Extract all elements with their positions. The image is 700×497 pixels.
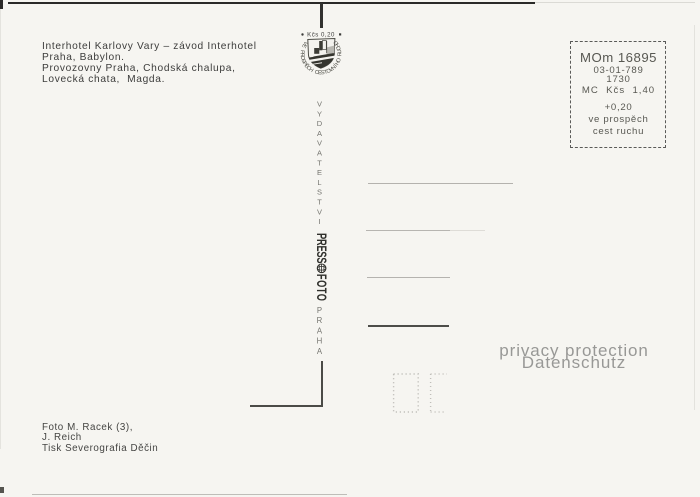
svg-text:A: A	[317, 326, 323, 335]
svg-text:A: A	[317, 149, 322, 158]
svg-text:Kčs 0,20: Kčs 0,20	[307, 31, 335, 38]
svg-text:A: A	[317, 347, 323, 356]
svg-text:O: O	[336, 57, 343, 64]
svg-text:L: L	[317, 178, 321, 187]
svg-text:A: A	[317, 129, 322, 138]
svg-text:R: R	[317, 316, 323, 325]
svg-text:S: S	[317, 188, 322, 197]
svg-text:E: E	[317, 168, 322, 177]
svg-text:V: V	[317, 139, 322, 148]
svg-text:P: P	[317, 306, 322, 315]
svg-text:D: D	[317, 119, 323, 128]
svg-text:T: T	[317, 158, 322, 167]
svg-text:V: V	[317, 207, 322, 216]
svg-text:FOTO: FOTO	[313, 274, 330, 302]
svg-text:V: V	[317, 100, 322, 109]
svg-text:Y: Y	[317, 109, 322, 118]
svg-text:PRESS: PRESS	[313, 233, 330, 264]
svg-text:H: H	[317, 337, 323, 346]
svg-text:T: T	[317, 198, 322, 207]
svg-text:I: I	[318, 217, 320, 226]
